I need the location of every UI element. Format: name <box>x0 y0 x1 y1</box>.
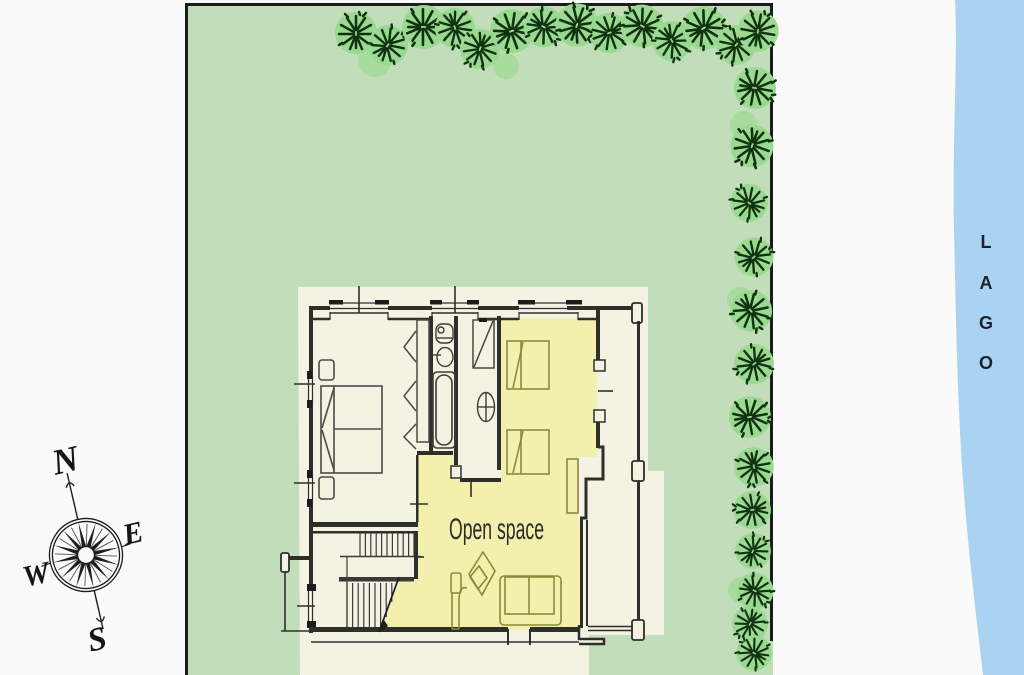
svg-text:A: A <box>980 273 993 293</box>
svg-text:L: L <box>981 232 992 252</box>
svg-text:Open space: Open space <box>449 513 544 546</box>
svg-text:O: O <box>979 353 993 373</box>
svg-text:G: G <box>979 313 993 333</box>
